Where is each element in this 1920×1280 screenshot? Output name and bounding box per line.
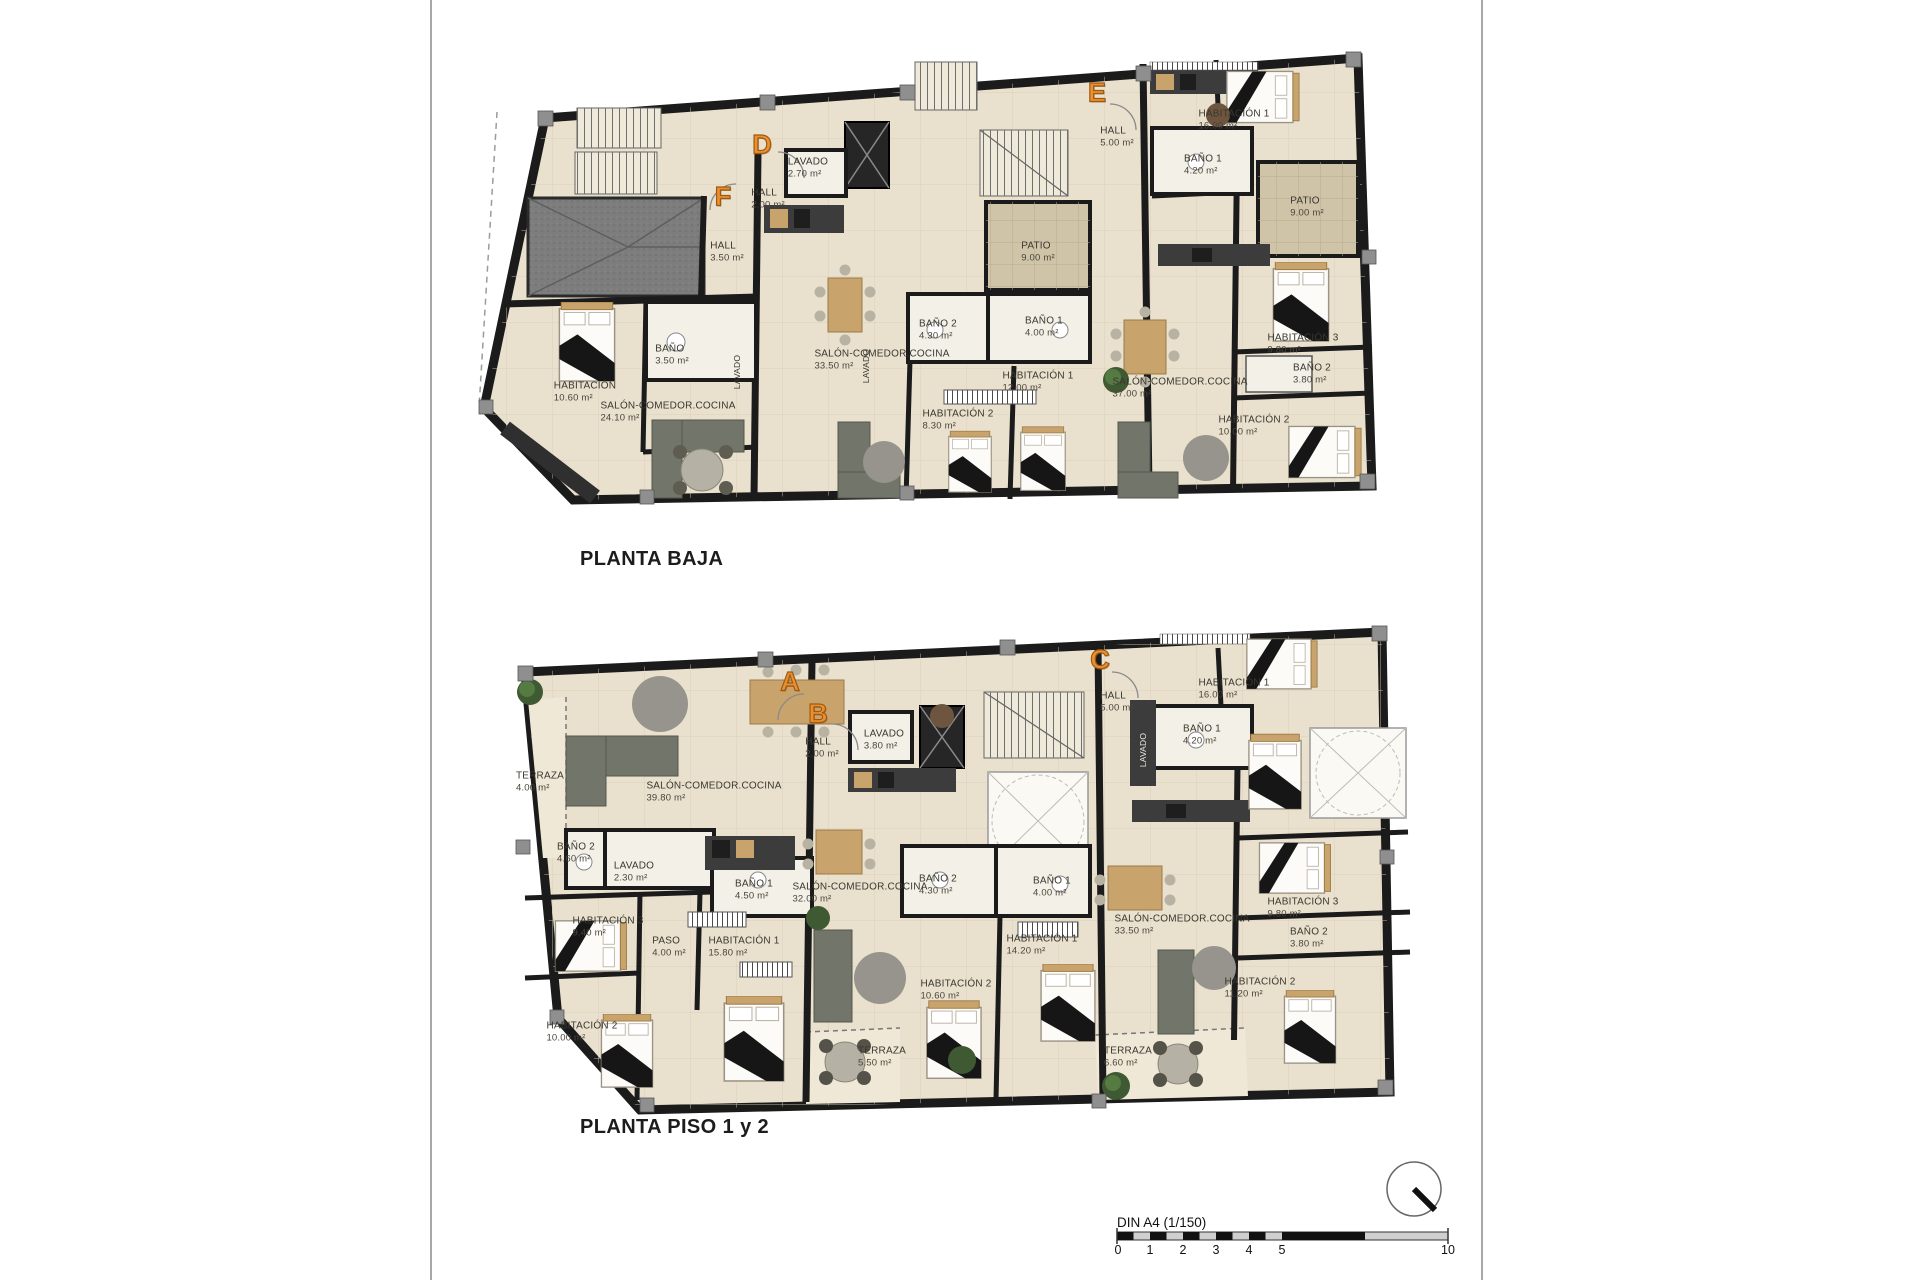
scale-bar-title: DIN A4 (1/150) <box>1117 1215 1206 1230</box>
patio-d <box>986 202 1090 290</box>
drawing-sheet: FHALL3.50 m²BAÑO3.50 m²LAVADOHABITACIÓN1… <box>0 0 1920 1280</box>
upper-plan <box>479 52 1376 504</box>
elevator-icon <box>845 122 889 188</box>
floor-plan-graphics <box>0 0 1920 1280</box>
lower-plan-title: PLANTA PISO 1 y 2 <box>580 1116 769 1139</box>
patio-e <box>1258 162 1358 256</box>
roof-area-icon <box>528 198 704 296</box>
north-indicator-icon <box>1387 1162 1441 1216</box>
staircase-icon-lower <box>984 692 1084 758</box>
lower-plan <box>516 626 1410 1112</box>
scale-bar <box>1117 1228 1448 1244</box>
upper-plan-title: PLANTA BAJA <box>580 548 723 571</box>
